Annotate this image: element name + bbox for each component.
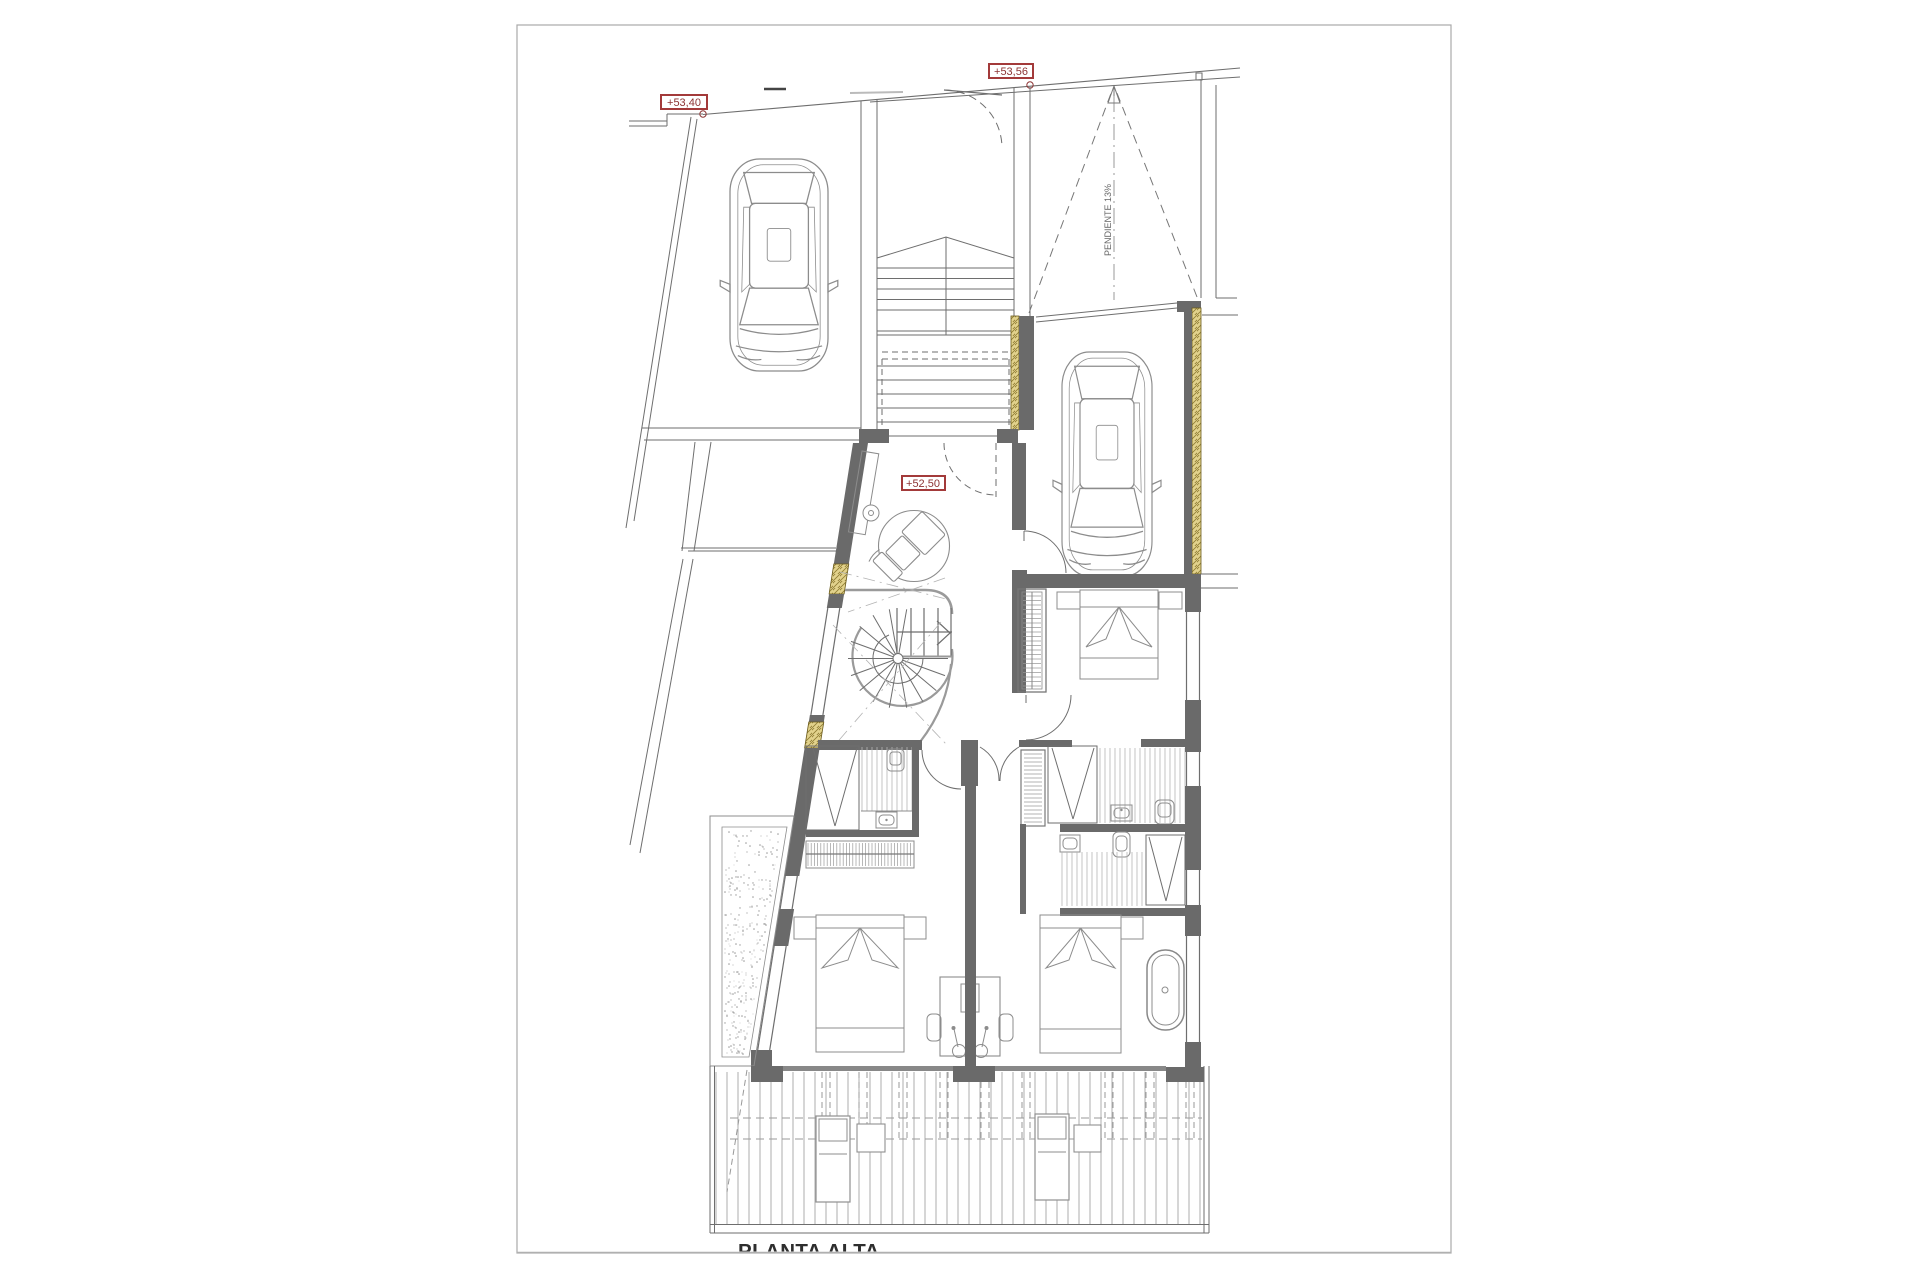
svg-text:PLANTA ALTA: PLANTA ALTA bbox=[738, 1240, 880, 1263]
svg-text:PENDIENTE 13%: PENDIENTE 13% bbox=[1103, 184, 1113, 256]
svg-text:+53,56: +53,56 bbox=[994, 66, 1028, 78]
svg-text:+52,50: +52,50 bbox=[906, 478, 940, 490]
svg-text:+53,40: +53,40 bbox=[667, 97, 701, 109]
